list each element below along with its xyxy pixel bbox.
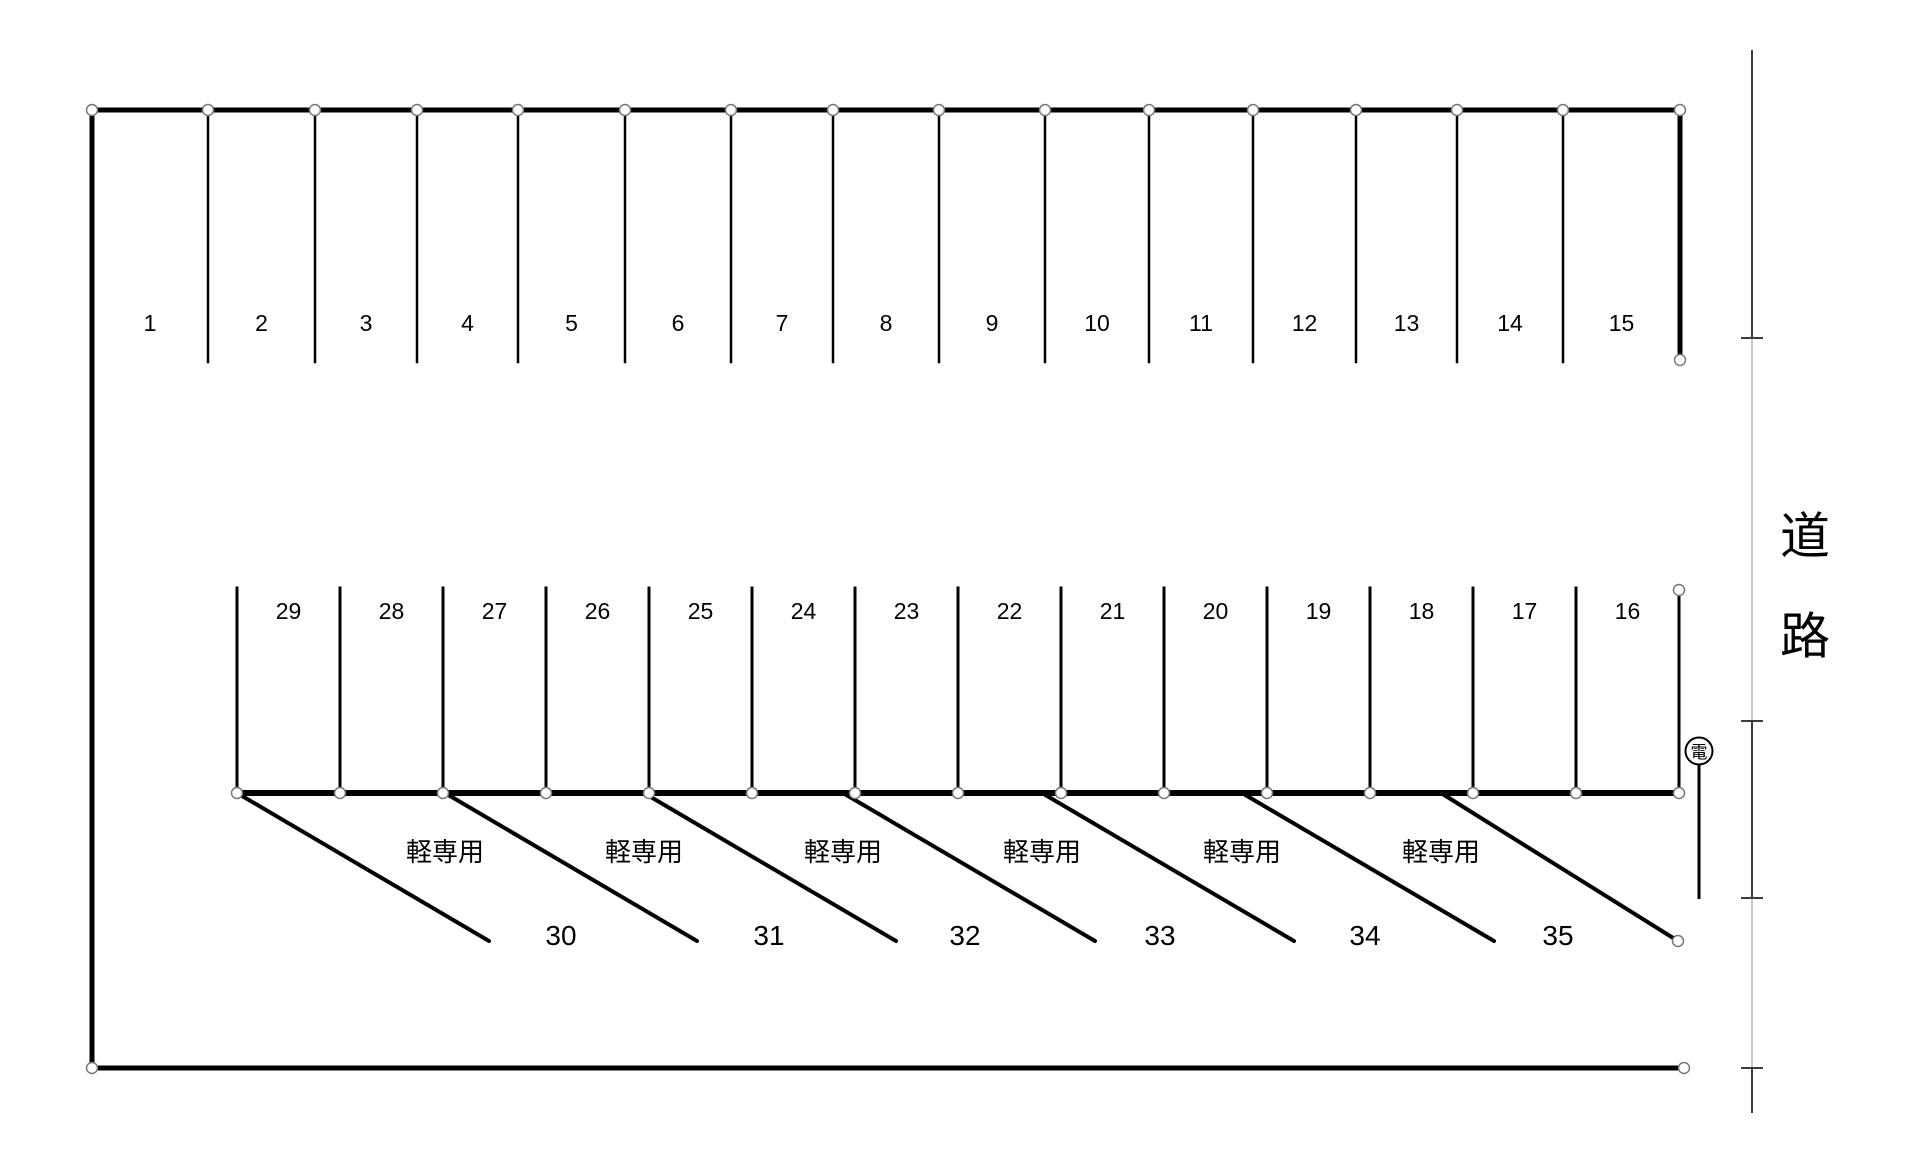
kei-only-label: 軽専用 [605,837,683,867]
junction-node [1558,105,1569,116]
stall-number-6: 6 [672,310,685,336]
stall-number-31: 31 [753,920,784,951]
stall-number-13: 13 [1394,310,1420,336]
kei-only-label: 軽専用 [804,837,882,867]
stall-number-14: 14 [1497,310,1523,336]
stall-number-11: 11 [1189,310,1213,336]
junction-node [1262,788,1273,799]
stall-number-33: 33 [1144,920,1175,951]
kei-only-label: 軽専用 [1203,837,1281,867]
stall-number-18: 18 [1409,598,1435,624]
junction-node [620,105,631,116]
kei-only-label: 軽専用 [1402,837,1480,867]
junction-node [1468,788,1479,799]
junction-node [828,105,839,116]
road-label-char: 路 [1780,609,1830,665]
stall-number-5: 5 [565,310,578,336]
junction-node [87,1063,98,1074]
stall-number-27: 27 [482,598,508,624]
stall-number-3: 3 [360,310,373,336]
junction-node [1679,1063,1690,1074]
stall-number-23: 23 [894,598,920,624]
stall-number-21: 21 [1100,598,1126,624]
road-label-char: 道 [1780,509,1830,565]
stall-number-32: 32 [949,920,980,951]
stall-number-16: 16 [1615,598,1641,624]
stall-number-22: 22 [997,598,1023,624]
junction-node [203,105,214,116]
parking-layout-svg: 電123456789101112131415292827262524232221… [0,0,1920,1165]
junction-node [541,788,552,799]
stall-number-17: 17 [1512,598,1538,624]
junction-node [934,105,945,116]
junction-node [1675,105,1686,116]
junction-node [1365,788,1376,799]
stall-number-15: 15 [1609,310,1635,336]
kei-only-label: 軽専用 [406,837,484,867]
stall-number-20: 20 [1203,598,1229,624]
junction-node [1351,105,1362,116]
stall-number-1: 1 [144,310,157,336]
stall-number-26: 26 [585,598,611,624]
junction-node [850,788,861,799]
stall-number-29: 29 [276,598,302,624]
kei-only-label: 軽専用 [1003,837,1081,867]
stall-number-25: 25 [688,598,714,624]
stall-number-2: 2 [255,310,268,336]
junction-node [726,105,737,116]
stall-number-4: 4 [461,310,474,336]
junction-node [1144,105,1155,116]
junction-node [1675,355,1686,366]
stall-number-8: 8 [880,310,893,336]
junction-node [310,105,321,116]
stall-number-35: 35 [1542,920,1573,951]
junction-node [1159,788,1170,799]
junction-node [1673,936,1684,947]
stall-number-19: 19 [1306,598,1332,624]
junction-node [1674,788,1685,799]
junction-node [1674,585,1685,596]
junction-node [87,105,98,116]
stall-number-10: 10 [1084,310,1110,336]
junction-node [644,788,655,799]
stall-number-7: 7 [776,310,789,336]
junction-node [747,788,758,799]
junction-node [1040,105,1051,116]
stall-number-9: 9 [986,310,999,336]
junction-node [1248,105,1259,116]
stall-number-30: 30 [545,920,576,951]
junction-node [513,105,524,116]
stall-number-28: 28 [379,598,405,624]
parking-lot-diagram: 電123456789101112131415292827262524232221… [0,0,1920,1165]
stall-number-34: 34 [1349,920,1380,951]
junction-node [1571,788,1582,799]
junction-node [232,788,243,799]
utility-pole-label: 電 [1691,743,1708,762]
junction-node [1452,105,1463,116]
junction-node [953,788,964,799]
junction-node [438,788,449,799]
stall-number-12: 12 [1292,310,1318,336]
junction-node [1056,788,1067,799]
stall-number-24: 24 [791,598,817,624]
junction-node [412,105,423,116]
junction-node [335,788,346,799]
